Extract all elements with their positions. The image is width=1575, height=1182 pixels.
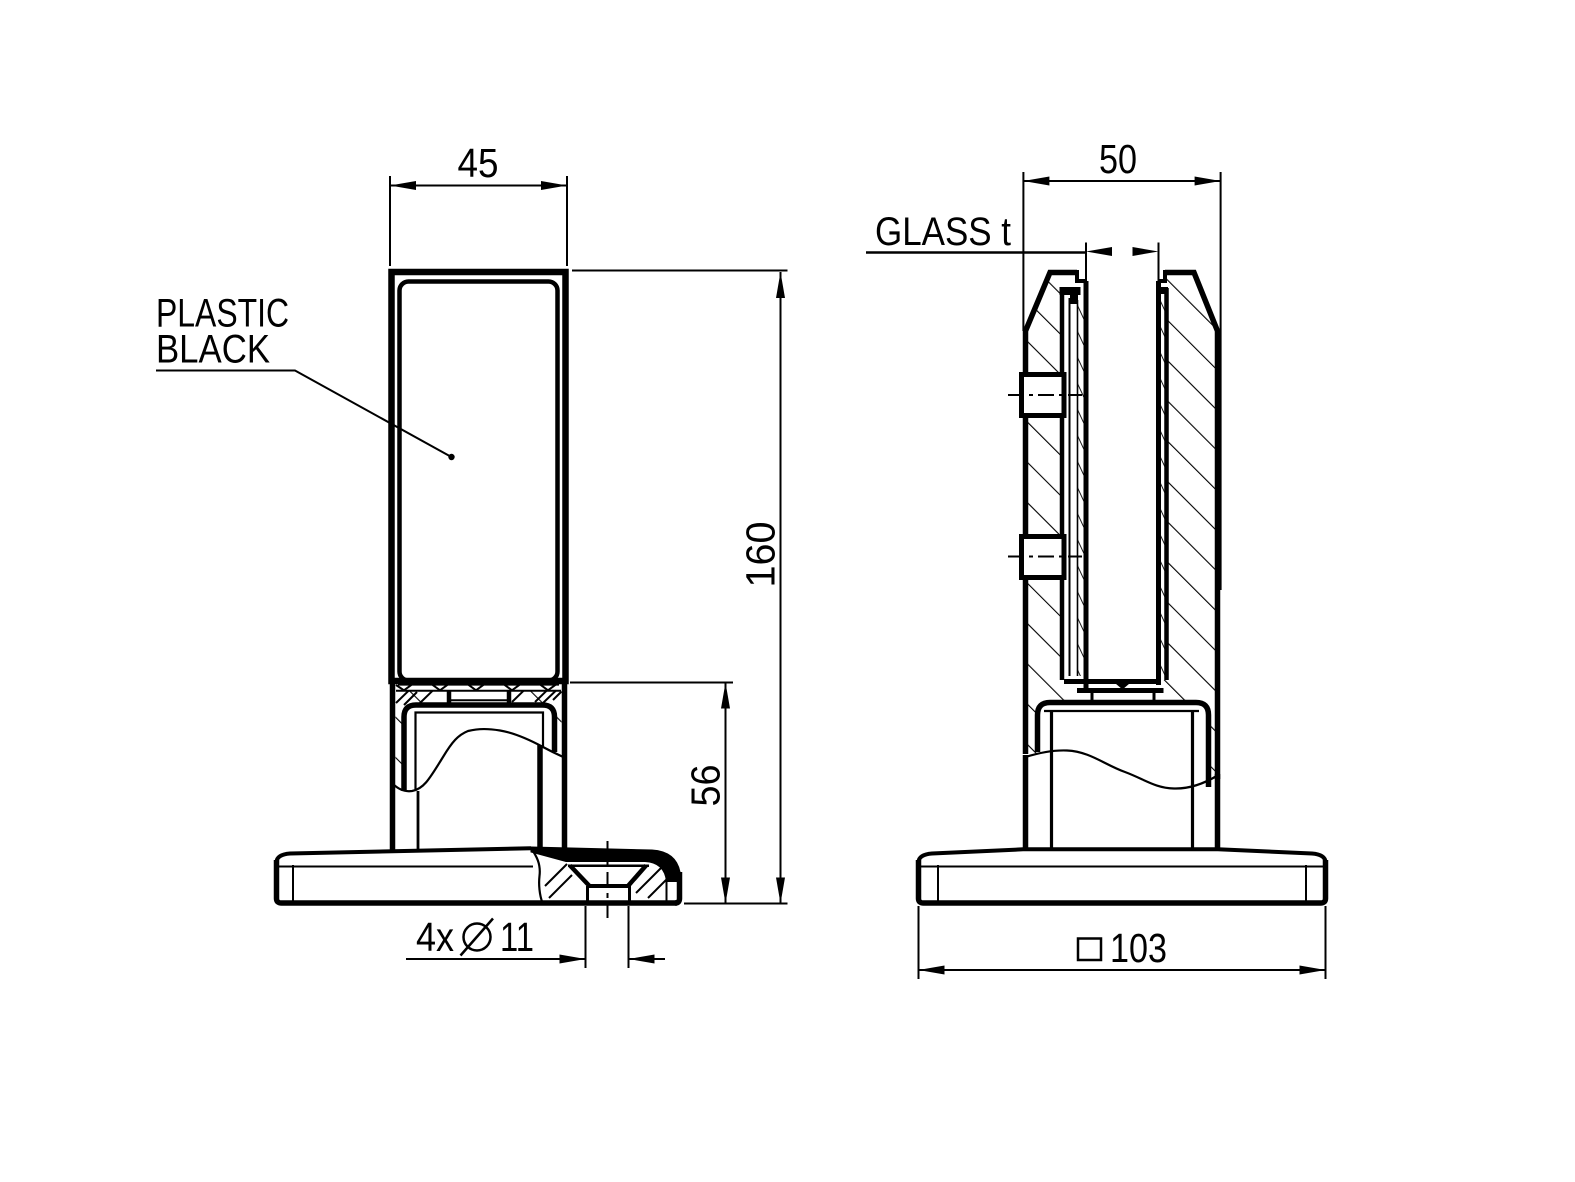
svg-text:BLACK: BLACK <box>156 328 270 372</box>
svg-text:103: 103 <box>1110 925 1167 971</box>
svg-text:45: 45 <box>458 140 499 186</box>
svg-text:56: 56 <box>683 765 729 807</box>
svg-text:50: 50 <box>1099 136 1137 182</box>
svg-text:160: 160 <box>738 522 784 588</box>
svg-text:11: 11 <box>500 914 534 960</box>
svg-text:GLASS t: GLASS t <box>875 210 1011 254</box>
svg-text:4x: 4x <box>416 914 454 960</box>
